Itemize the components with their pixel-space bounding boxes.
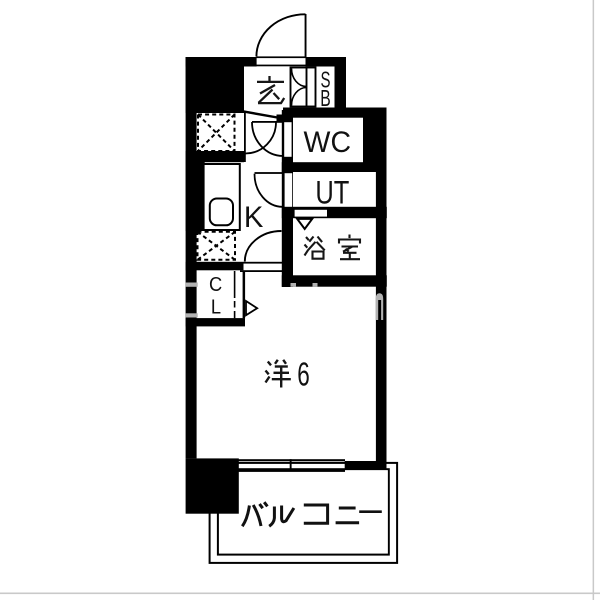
svg-text:6: 6 [297,357,310,394]
svg-text:K: K [244,201,264,234]
svg-text:L: L [211,296,221,319]
svg-text:B: B [320,85,331,111]
svg-text:UT: UT [315,174,349,210]
svg-text:WC: WC [304,126,352,159]
svg-text:C: C [209,273,222,296]
